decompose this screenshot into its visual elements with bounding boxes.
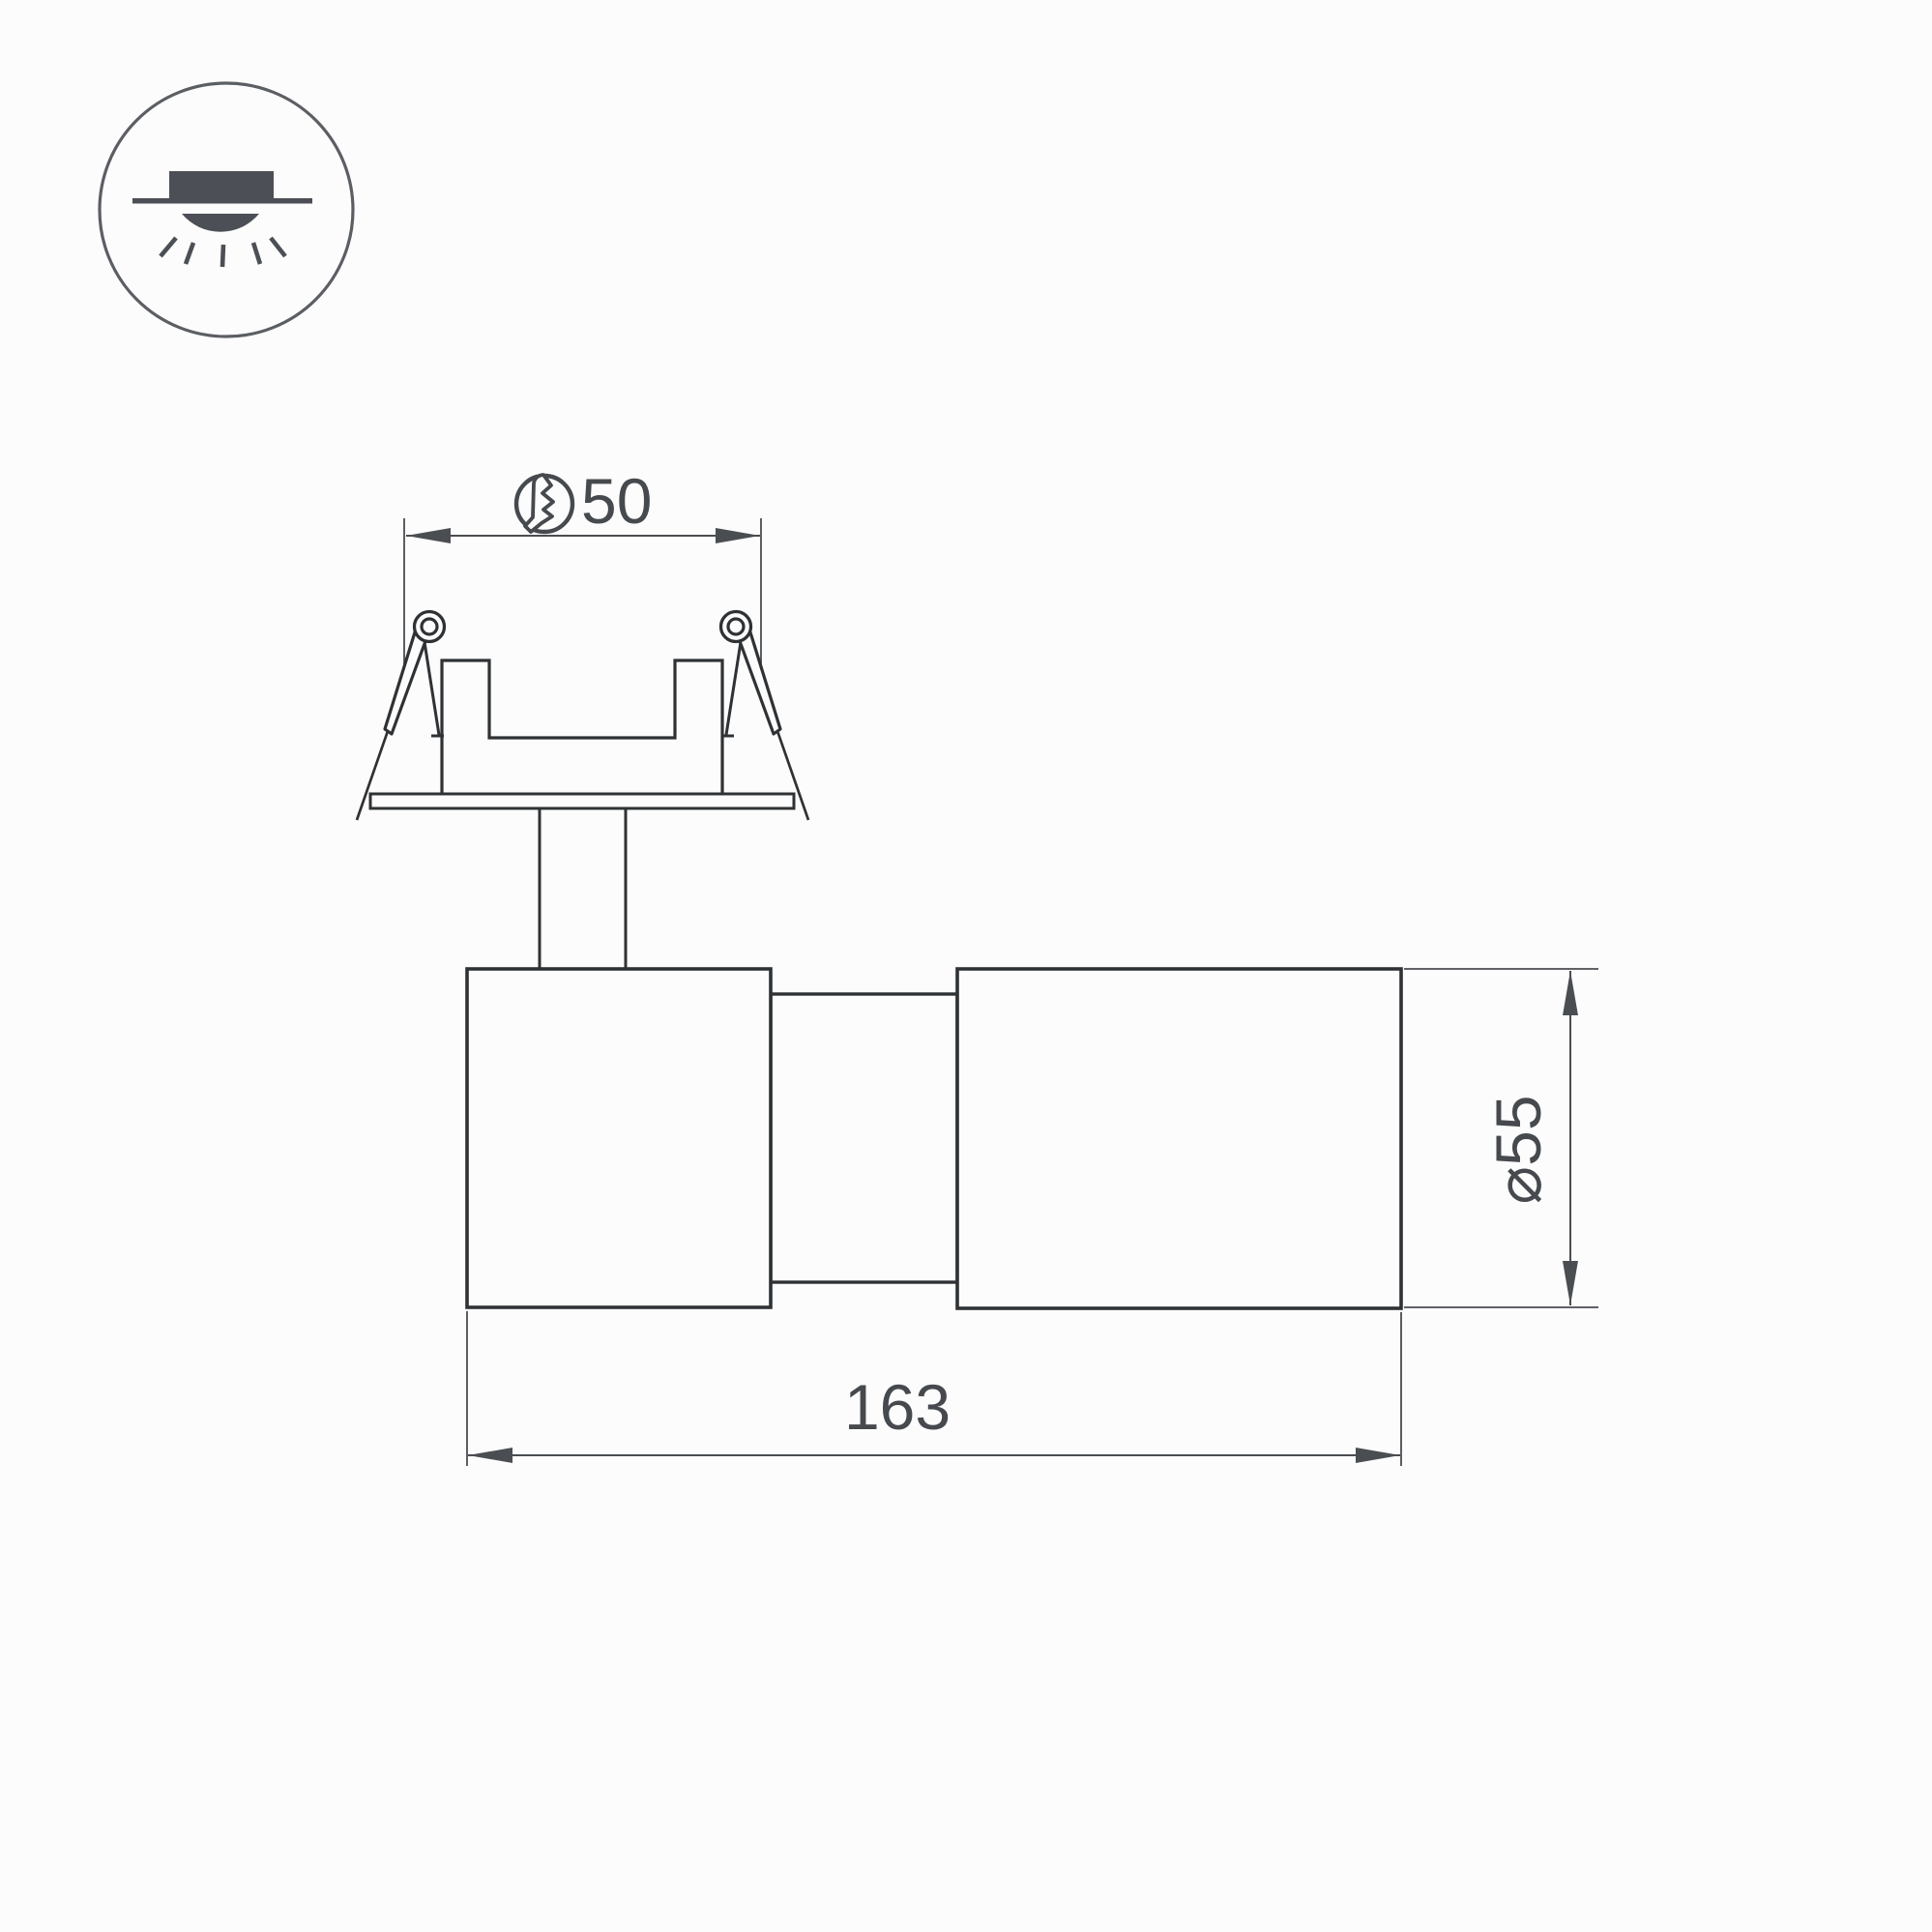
body-hinge-section — [771, 994, 957, 1282]
light-ray — [186, 243, 193, 264]
body-front-section — [957, 969, 1401, 1308]
icon-lamp-dome — [182, 214, 259, 232]
icon-ceiling-line — [132, 198, 312, 204]
arrowhead-left — [468, 1448, 512, 1463]
cutout-dimension: 50 — [406, 465, 760, 543]
spring-clip-right — [721, 612, 809, 821]
diameter-dimension: ⌀55 — [1404, 969, 1598, 1307]
cutout-dimension-extensions — [404, 518, 761, 683]
body-rear-section — [467, 969, 771, 1307]
light-ray — [253, 243, 260, 264]
clip-pivot-hole — [422, 619, 437, 634]
mounting-assembly — [357, 612, 808, 970]
length-label: 163 — [844, 1371, 951, 1443]
length-dimension: 163 — [467, 1311, 1401, 1466]
arrowhead-right — [1356, 1448, 1400, 1463]
diameter-label: ⌀55 — [1482, 1095, 1554, 1204]
light-ray — [161, 238, 176, 256]
clip-spring-leaf — [424, 642, 439, 735]
recessed-can-profile — [442, 660, 722, 794]
clip-arm — [385, 632, 425, 734]
recessed-downlight-icon — [100, 83, 353, 337]
arrowhead-top — [1563, 971, 1578, 1015]
light-ray — [271, 238, 285, 256]
arrowhead-left — [406, 528, 451, 543]
technical-drawing-canvas: 50 ⌀55 163 — [0, 0, 1932, 1932]
cutout-symbol-key — [525, 475, 553, 532]
icon-fixture-body — [169, 171, 274, 199]
arrowhead-bottom — [1563, 1261, 1578, 1305]
spring-clip-left — [357, 612, 445, 821]
icon-light-rays — [161, 238, 285, 267]
arrowhead-right — [716, 528, 760, 543]
trim-flange — [370, 794, 794, 808]
light-ray — [222, 245, 223, 267]
drawing-page: 50 ⌀55 163 — [0, 0, 1932, 1932]
cutout-symbol-icon — [516, 475, 572, 532]
cutout-value-label: 50 — [581, 465, 652, 537]
icon-circle — [100, 83, 353, 337]
lamp-head — [467, 969, 1401, 1308]
